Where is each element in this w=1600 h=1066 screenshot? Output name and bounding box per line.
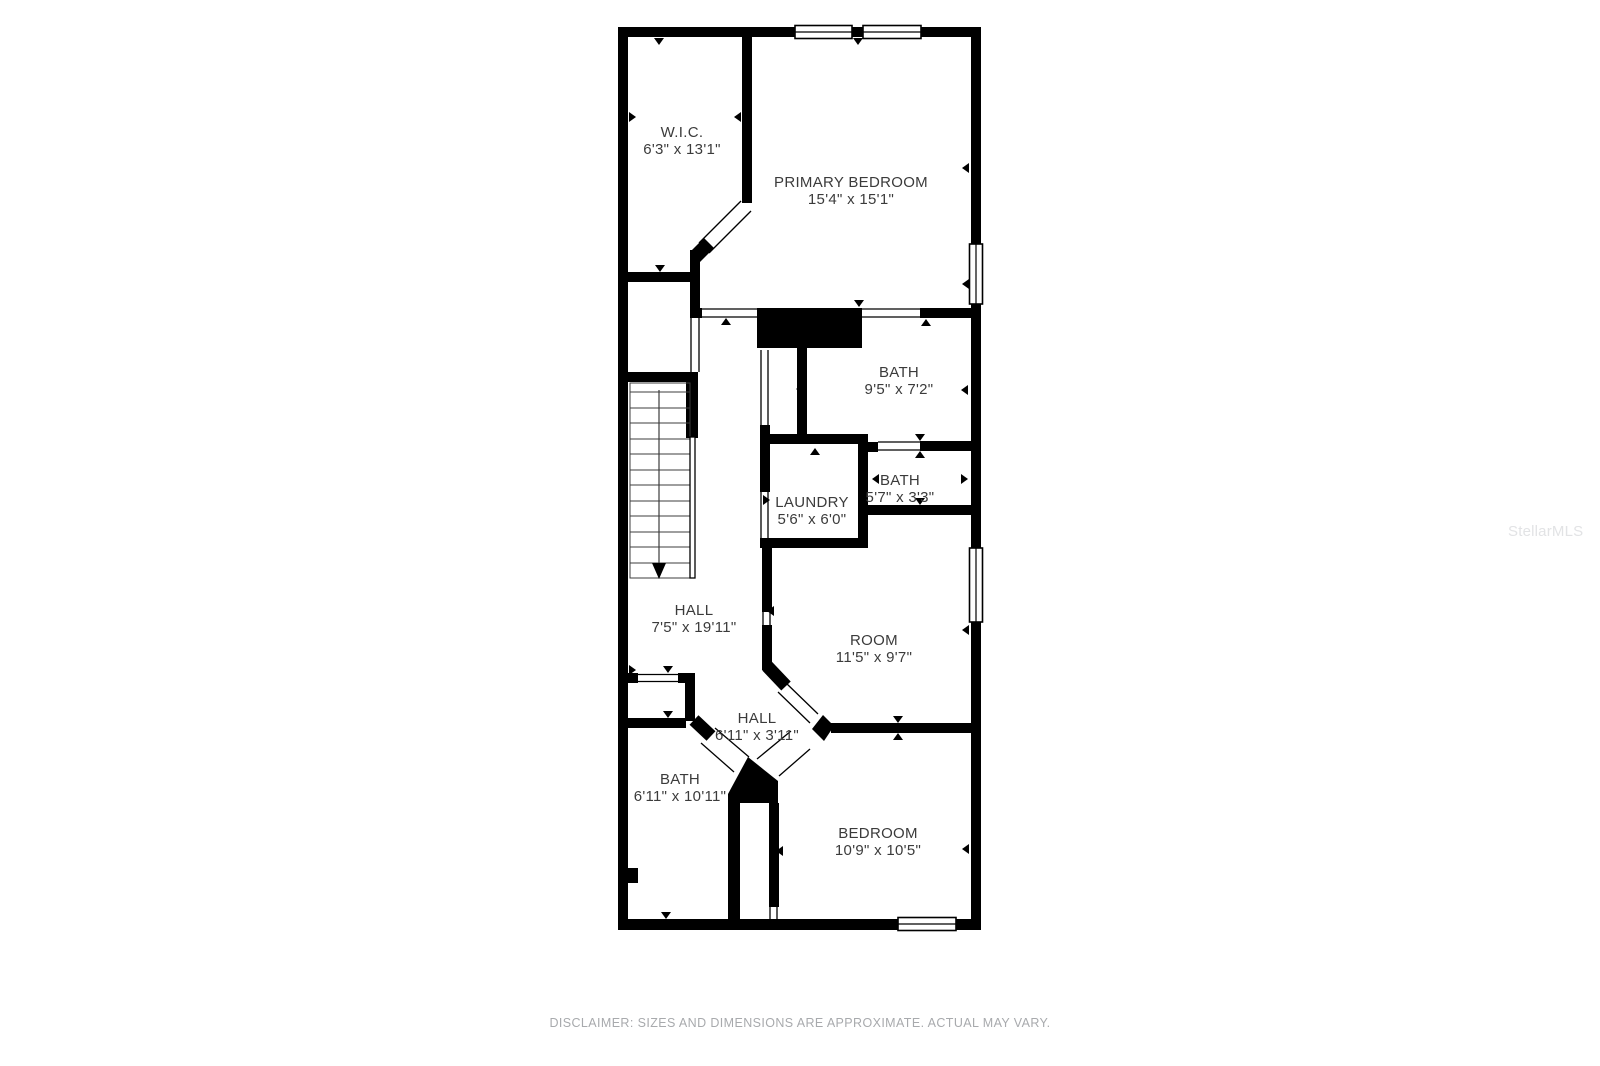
- room-name: BEDROOM: [835, 825, 921, 842]
- room-dims: 5'6" x 6'0": [775, 511, 849, 528]
- room-dims: 9'5" x 7'2": [865, 381, 934, 398]
- stairs-down-arrow-icon: [652, 563, 666, 579]
- room-label-primary-bedroom: PRIMARY BEDROOM 15'4" x 15'1": [774, 174, 928, 208]
- room-name: BATH: [865, 364, 934, 381]
- room-name: HALL: [651, 602, 736, 619]
- room-dims: 7'5" x 19'11": [651, 619, 736, 636]
- room-name: LAUNDRY: [775, 494, 849, 511]
- room-name: BATH: [866, 472, 935, 489]
- room-name: ROOM: [836, 632, 912, 649]
- floor-plan-page: W.I.C. 6'3" x 13'1" PRIMARY BEDROOM 15'4…: [0, 0, 1600, 1066]
- room-label-hall-2: HALL 6'11" x 3'11": [715, 710, 799, 744]
- room-dims: 11'5" x 9'7": [836, 649, 912, 666]
- room-dims: 15'4" x 15'1": [774, 191, 928, 208]
- room-dims: 5'7" x 3'3": [866, 489, 935, 506]
- room-label-hall: HALL 7'5" x 19'11": [651, 602, 736, 636]
- disclaimer-text: DISCLAIMER: SIZES AND DIMENSIONS ARE APP…: [0, 1016, 1600, 1030]
- room-dims: 6'11" x 10'11": [634, 788, 727, 805]
- room-label-wic: W.I.C. 6'3" x 13'1": [643, 124, 721, 158]
- room-name: BATH: [634, 771, 727, 788]
- room-label-laundry: LAUNDRY 5'6" x 6'0": [775, 494, 849, 528]
- room-label-bath-3: BATH 6'11" x 10'11": [634, 771, 727, 805]
- watermark-text: StellarMLS: [1508, 523, 1583, 540]
- room-label-bedroom: BEDROOM 10'9" x 10'5": [835, 825, 921, 859]
- room-dims: 10'9" x 10'5": [835, 842, 921, 859]
- room-name: HALL: [715, 710, 799, 727]
- room-name: PRIMARY BEDROOM: [774, 174, 928, 191]
- room-name: W.I.C.: [643, 124, 721, 141]
- room-dims: 6'3" x 13'1": [643, 141, 721, 158]
- room-label-bath-1: BATH 9'5" x 7'2": [865, 364, 934, 398]
- staircase: [630, 383, 695, 579]
- room-label-bath-2: BATH 5'7" x 3'3": [866, 472, 935, 506]
- stair-railing: [690, 437, 695, 578]
- room-label-room: ROOM 11'5" x 9'7": [836, 632, 912, 666]
- room-dims: 6'11" x 3'11": [715, 727, 799, 744]
- floor-plan-drawing: [0, 0, 1600, 1066]
